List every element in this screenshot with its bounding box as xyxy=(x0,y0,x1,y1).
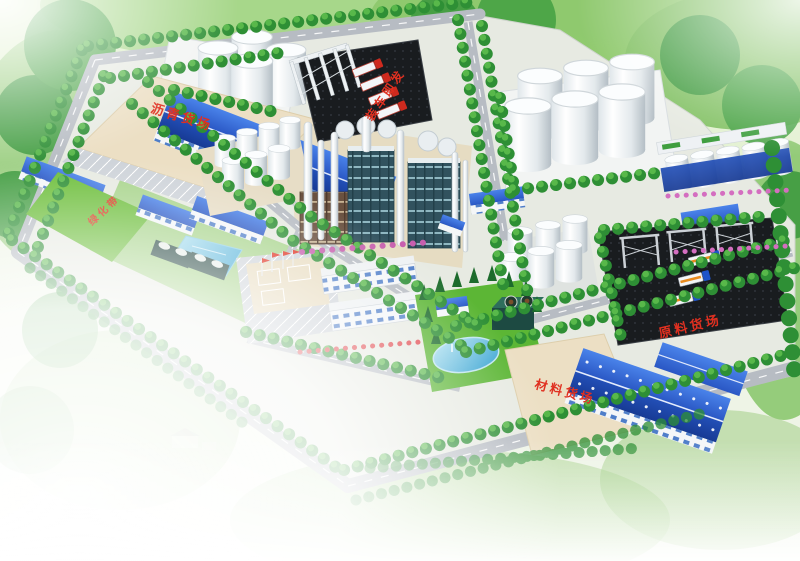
plant-aerial-rendering: 沥青货场 装车即发 绿化带 原料货场 材料货场 xyxy=(0,0,800,561)
edge-fades xyxy=(0,0,800,561)
aerial-scene-canvas: 沥青货场 装车即发 绿化带 原料货场 材料货场 xyxy=(0,0,800,561)
